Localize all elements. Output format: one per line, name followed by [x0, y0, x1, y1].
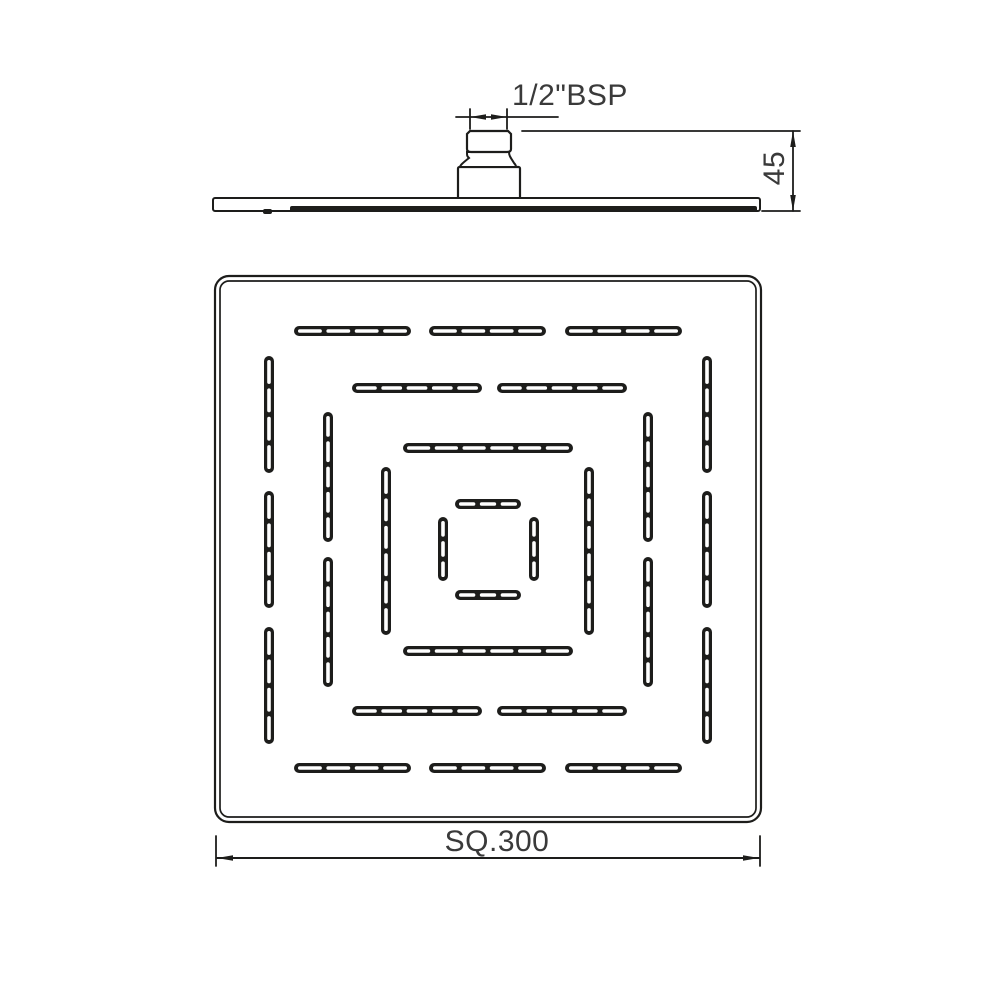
nozzle-slot: [267, 659, 271, 683]
nozzle-slot: [267, 688, 271, 712]
nozzle-slot: [267, 417, 271, 441]
nozzle-strip: [643, 412, 653, 542]
nozzle-slot: [435, 446, 458, 450]
nozzle-slot: [587, 553, 591, 576]
nozzle-slot: [441, 561, 445, 577]
nozzle-slot: [646, 612, 650, 633]
nozzle-slot: [407, 649, 430, 653]
nozzle-slot: [435, 649, 458, 653]
nozzle-slot: [326, 467, 330, 488]
nozzle-slot: [267, 580, 271, 604]
height-dimension-label: 45: [760, 151, 790, 185]
nozzle-slot: [518, 649, 541, 653]
nozzle-slot: [326, 441, 330, 462]
nozzle-slot: [441, 541, 445, 557]
nozzle-slot: [587, 526, 591, 549]
nozzle-strip: [497, 383, 627, 393]
nozzle-slot: [646, 492, 650, 513]
nozzle-slot: [433, 766, 457, 770]
nozzle-slot: [326, 492, 330, 513]
nozzle-slot: [298, 329, 322, 333]
thread-dim-arrow: [470, 114, 486, 120]
nozzle-slot: [326, 662, 330, 683]
nozzle-slot: [432, 386, 453, 390]
nozzle-slot: [356, 386, 377, 390]
nozzle-strip: [294, 763, 411, 773]
nozzle-strip: [403, 646, 573, 656]
nozzle-slot: [626, 766, 650, 770]
nozzle-slot: [463, 649, 486, 653]
nozzle-slot: [267, 495, 271, 519]
nozzle-slot: [705, 659, 709, 683]
nozzle-strip: [565, 763, 682, 773]
nozzle-slot: [441, 521, 445, 537]
nozzle-slot: [577, 386, 598, 390]
nozzle-slot: [267, 360, 271, 384]
nozzle-slot: [461, 766, 485, 770]
nozzle-slot: [587, 581, 591, 604]
nozzle-slot: [597, 329, 621, 333]
nozzle-slot: [626, 329, 650, 333]
nozzle-strip: [264, 491, 274, 608]
nozzle-slot: [705, 417, 709, 441]
nozzle-slot: [384, 526, 388, 549]
nozzle-slot: [463, 446, 486, 450]
nozzle-slot: [587, 471, 591, 494]
size-dim-arrow: [217, 855, 233, 861]
nozzle-strip: [438, 517, 448, 581]
nozzle-strip: [565, 326, 682, 336]
nozzle-slot: [381, 709, 402, 713]
nozzle-slot: [383, 329, 407, 333]
nozzle-slot: [298, 766, 322, 770]
nozzle-slot: [518, 766, 542, 770]
nozzle-slot: [267, 388, 271, 412]
nozzle-slot: [501, 709, 522, 713]
nozzle-slot: [597, 766, 621, 770]
nozzle-slot: [705, 388, 709, 412]
nozzle-slot: [646, 561, 650, 582]
nozzle-slot: [407, 386, 428, 390]
nozzle-slot: [480, 593, 496, 597]
nozzle-slot: [326, 517, 330, 538]
nozzle-slot: [267, 716, 271, 740]
nozzle-slot: [501, 386, 522, 390]
nozzle-strip: [702, 491, 712, 608]
plate-detail-notch: [263, 209, 272, 214]
nozzle-slot: [532, 561, 536, 577]
plate-face-band: [290, 206, 757, 212]
nozzle-slot: [532, 541, 536, 557]
nozzle-strip: [702, 356, 712, 473]
thread-dimension-label: 1/2"BSP: [512, 81, 628, 111]
connector-base: [458, 167, 520, 199]
nozzle-strip: [455, 590, 521, 600]
nozzle-slot: [355, 329, 379, 333]
nozzle-slot: [646, 416, 650, 437]
nozzle-strip: [294, 326, 411, 336]
nozzle-slot: [569, 329, 593, 333]
height-dim-arrow: [790, 195, 796, 211]
nozzle-strip: [264, 627, 274, 744]
nozzle-strip: [264, 356, 274, 473]
nozzle-slot: [705, 688, 709, 712]
nozzle-slot: [526, 386, 547, 390]
thread-inlet: [467, 131, 511, 152]
nozzle-strip: [429, 326, 546, 336]
nozzle-slot: [501, 593, 517, 597]
nozzle-slot: [518, 446, 541, 450]
nozzle-slot: [646, 662, 650, 683]
nozzle-slot: [705, 523, 709, 547]
nozzle-slot: [326, 586, 330, 607]
nozzle-strip: [702, 627, 712, 744]
nozzle-slot: [546, 446, 569, 450]
nozzle-strip: [643, 557, 653, 687]
nozzle-slot: [705, 631, 709, 655]
nozzle-slot: [384, 553, 388, 576]
nozzle-slot: [326, 329, 350, 333]
size-dimension-label: SQ.300: [445, 827, 550, 857]
nozzle-slot: [518, 329, 542, 333]
nozzle-slot: [490, 649, 513, 653]
nozzle-strip: [529, 517, 539, 581]
nozzle-slot: [461, 329, 485, 333]
nozzle-slot: [526, 709, 547, 713]
nozzle-strip: [352, 383, 482, 393]
nozzle-slot: [587, 498, 591, 521]
nozzle-slot: [602, 709, 623, 713]
nozzle-strip: [497, 706, 627, 716]
nozzle-slot: [490, 329, 514, 333]
nozzle-slot: [326, 416, 330, 437]
nozzle-slot: [384, 608, 388, 631]
nozzle-slot: [407, 709, 428, 713]
nozzle-slot: [602, 386, 623, 390]
nozzle-strip: [352, 706, 482, 716]
nozzle-slot: [384, 581, 388, 604]
nozzle-slot: [532, 521, 536, 537]
nozzle-slot: [552, 709, 573, 713]
nozzle-slot: [646, 586, 650, 607]
height-dim-arrow: [790, 131, 796, 147]
nozzle-slot: [457, 709, 478, 713]
nozzle-slot: [490, 766, 514, 770]
connector-collar: [460, 152, 516, 167]
nozzle-slot: [407, 446, 430, 450]
nozzle-slot: [646, 467, 650, 488]
nozzle-slot: [480, 502, 496, 506]
nozzle-strip: [584, 467, 594, 635]
nozzle-slot: [705, 716, 709, 740]
thread-dim-arrow: [491, 114, 507, 120]
nozzle-slot: [381, 386, 402, 390]
nozzle-strip: [323, 557, 333, 687]
nozzle-slot: [705, 360, 709, 384]
nozzle-slot: [384, 498, 388, 521]
nozzle-slot: [646, 441, 650, 462]
nozzle-slot: [646, 637, 650, 658]
nozzle-strip: [403, 443, 573, 453]
nozzle-slot: [355, 766, 379, 770]
size-dim-arrow: [743, 855, 759, 861]
nozzle-slot: [432, 709, 453, 713]
nozzle-slot: [383, 766, 407, 770]
nozzle-slot: [267, 552, 271, 576]
nozzle-slot: [356, 709, 377, 713]
nozzle-slot: [326, 637, 330, 658]
nozzle-slot: [457, 386, 478, 390]
nozzle-slot: [267, 445, 271, 469]
nozzle-slot: [433, 329, 457, 333]
nozzle-slot: [587, 608, 591, 631]
nozzle-strip: [429, 763, 546, 773]
nozzle-slot: [384, 471, 388, 494]
nozzle-slot: [654, 329, 678, 333]
nozzle-slot: [326, 766, 350, 770]
nozzle-slot: [705, 445, 709, 469]
nozzle-slot: [267, 631, 271, 655]
face-plate-outline: [215, 276, 761, 822]
technical-drawing-page: 1/2"BSP 45 SQ.300: [0, 0, 1000, 1000]
nozzle-slot: [326, 612, 330, 633]
nozzle-slot: [501, 502, 517, 506]
nozzle-slot: [577, 709, 598, 713]
nozzle-strip: [381, 467, 391, 635]
nozzle-slot: [569, 766, 593, 770]
nozzle-slot: [326, 561, 330, 582]
nozzle-slot: [490, 446, 513, 450]
nozzle-slot: [459, 593, 475, 597]
nozzle-slot: [705, 552, 709, 576]
nozzle-slot: [646, 517, 650, 538]
nozzle-slot: [654, 766, 678, 770]
nozzle-slot: [459, 502, 475, 506]
nozzle-slot: [705, 580, 709, 604]
nozzle-strip: [323, 412, 333, 542]
nozzle-slot: [705, 495, 709, 519]
nozzle-slot: [552, 386, 573, 390]
nozzle-slot: [546, 649, 569, 653]
nozzle-slot: [267, 523, 271, 547]
nozzle-strip: [455, 499, 521, 509]
